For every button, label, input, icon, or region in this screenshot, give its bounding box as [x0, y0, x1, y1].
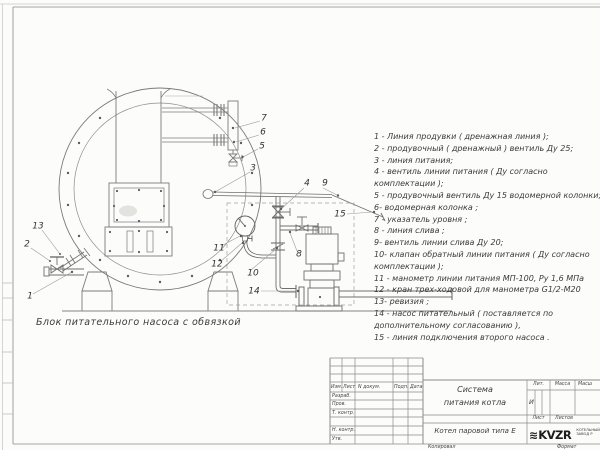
check-valve [271, 243, 285, 250]
flange-pairs [214, 104, 224, 146]
legend-line: дополнительному согласованию ), [374, 320, 600, 332]
logo-wave-icon: ≋ [529, 429, 538, 442]
legend-line: комплектации ); [374, 178, 600, 190]
feed-line-piping [203, 190, 385, 222]
legend-line: 8 - линия слива ; [374, 225, 600, 237]
legend-line: 10- клапан обратный линии питания ( Ду с… [374, 249, 600, 261]
listov-header: Листов [550, 416, 578, 421]
title-block-col-header: Изм. [331, 385, 342, 390]
title-block-col-header: Подп. [394, 385, 409, 390]
pump-motor [306, 234, 338, 264]
legend-line: 12 - кран трех-ходовой для манометра G1/… [374, 284, 600, 296]
callout-number-14: 14 [248, 287, 259, 297]
masshtab-header: Масш [578, 382, 592, 387]
left-margin-cells [3, 283, 14, 414]
callout-number-13: 13 [32, 222, 43, 232]
lit-value: И [529, 398, 534, 406]
leader-lines [31, 121, 375, 294]
callout-number-7: 7 [261, 114, 267, 124]
logo-caption: КОТЕЛЬНЫЙ ЗАВОД Р [576, 424, 600, 437]
legend-line: 15 - линия подключения второго насоса . [374, 332, 600, 344]
logo-text: KVZR [538, 428, 571, 442]
drain-branch [280, 217, 318, 233]
legend-list: 1 - Линия продувки ( дренажная линия );2… [374, 131, 600, 345]
legend-line: 14 - насос питательный ( поставляется по [374, 308, 600, 320]
scanned-gost-drawing: { "legend": { "lines": [ "1 - Линия прод… [0, 0, 600, 450]
title-block-row-label: Т. контр. [332, 411, 354, 416]
boiler-supports [82, 272, 238, 311]
title-block-row-label: Пров. [332, 402, 346, 407]
title-block-col-header: Лист [343, 385, 355, 390]
format-label: Формат [557, 445, 576, 450]
callout-number-15: 15 [334, 210, 345, 220]
callout-number-12: 12 [211, 260, 222, 270]
callout-number-4: 4 [304, 179, 310, 189]
legend-line: 9- вентиль линии слива Ду 20; [374, 237, 600, 249]
legend-line: 11 - манометр линии питания МП-100, Ру 1… [374, 273, 600, 285]
water-gauge-column [162, 101, 242, 166]
legend-line: 1 - Линия продувки ( дренажная линия ); [374, 131, 600, 143]
drawing-caption: Блок питательного насоса с обвязкой [36, 317, 241, 328]
legend-line: комплектации ); [374, 261, 600, 273]
product-name: Котел паровой типа Е [423, 427, 527, 435]
blowdown-valve-assembly [44, 248, 90, 276]
list-header: Лист [527, 416, 550, 421]
legend-line: 5 - продувочный вентиль Ду 15 водомерной… [374, 190, 600, 202]
callout-number-2: 2 [24, 240, 30, 250]
callout-number-5: 5 [259, 142, 265, 152]
callout-number-1: 1 [27, 292, 33, 302]
lit-header: Лит. [527, 382, 550, 387]
callout-number-9: 9 [322, 179, 328, 189]
kvzr-logo: ≋KVZR КОТЕЛЬНЫЙ ЗАВОД Р [529, 424, 600, 443]
callout-number-3: 3 [250, 164, 256, 174]
document-title-line2: питания котла [423, 398, 527, 407]
title-block-row-label: Разраб. [332, 394, 351, 399]
callout-number-8: 8 [296, 250, 302, 260]
revision-fitting [60, 248, 90, 271]
title-block-row-label: Н. контр. [332, 428, 355, 433]
title-block-col-header: Дата [410, 385, 422, 390]
legend-line: 3 - линия питания; [374, 155, 600, 167]
legend-line: 6- водомерная колонка ; [374, 202, 600, 214]
legend-line: 2 - продувочный ( дренажный ) вентиль Ду… [374, 143, 600, 155]
callout-number-10: 10 [247, 269, 258, 279]
column-blowdown-valve [229, 150, 242, 166]
legend-line: 4 - вентиль линии питания ( Ду согласно [374, 166, 600, 178]
callout-number-11: 11 [213, 244, 224, 254]
document-title-line1: Система [423, 385, 527, 394]
burner-plate [105, 227, 172, 256]
title-block-row-label: Утв. [332, 437, 342, 442]
massa-header: Масса [550, 382, 575, 387]
title-block-col-header: N докум. [358, 385, 380, 390]
kopiroval-label: Копировал [428, 445, 455, 450]
callout-number-6: 6 [260, 128, 266, 138]
legend-line: 13- ревизия ; [374, 296, 600, 308]
legend-line: 7 - указатель уровня ; [374, 214, 600, 226]
furnace-hatch [109, 183, 169, 227]
